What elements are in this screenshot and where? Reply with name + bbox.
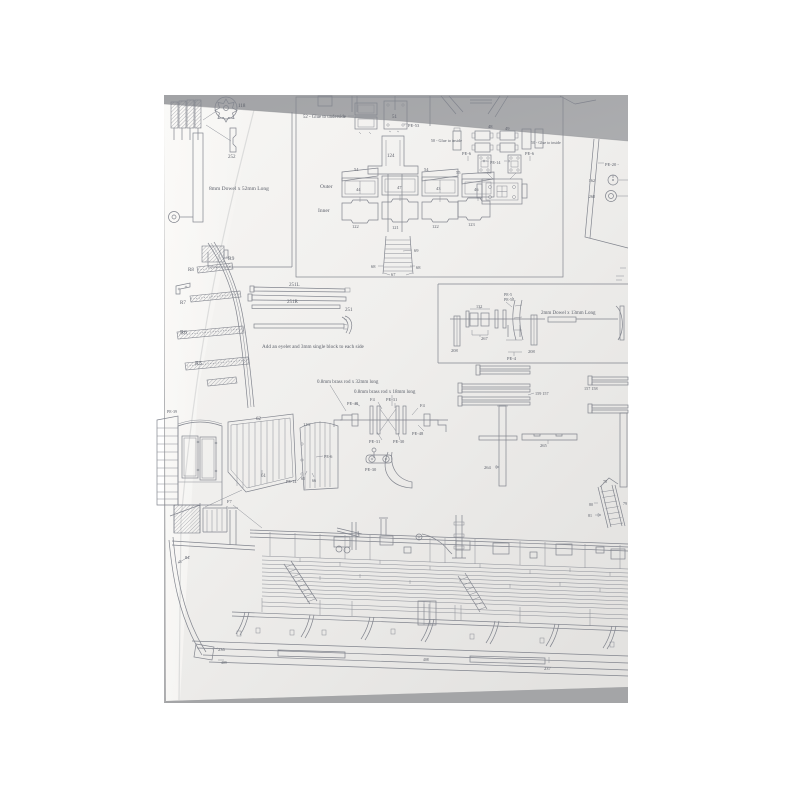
part-label-r5: R5 [195,361,202,367]
part-label-81: 81 [588,513,592,518]
part-label-pe14-top: PE-14 [490,160,501,165]
part-label-pe31-bottom: PE-31 [369,439,380,444]
part-label-162: 162 [589,178,595,183]
part-label-65: 65 [301,476,305,481]
part-label-264: 264 [484,465,492,470]
part-label-267: 267 [481,336,489,341]
part-label-79: 79 [623,501,627,506]
part-label-44: 44 [356,187,361,192]
part-label-122a: 122 [352,224,359,229]
part-label-r8: R8 [188,268,194,273]
part-label-pe30-bottom: PE-30 [365,467,377,472]
part-label-268: 268 [589,194,595,199]
part-label-118: 118 [238,104,246,109]
part-label-116: 116 [303,422,310,427]
part-label-66: 66 [312,478,316,483]
instruction-50-glue-inside-left: 50 - Glue to inside [431,138,462,143]
part-label-54a: 54 [354,167,359,172]
instruction-brassrod-32mm: 0.8mm brass rod x 32mm long [317,380,379,385]
part-label-208-right: 208 [528,349,536,354]
instruction-brassrod-18mm: 0.8mm brass rod x 18mm long [354,390,416,395]
instruction-52-glue-underside: 52 - Glue to underside [303,115,346,120]
part-label-132: 132 [476,304,482,309]
part-label-47: 47 [397,185,402,190]
part-label-265: 265 [540,443,548,448]
part-label-69: 69 [414,248,419,253]
part-label-251R: 251R [287,300,299,305]
part-label-55: 55 [456,170,461,175]
part-label-157-158: 157 158 [584,386,598,391]
part-label-pe50: PE-50 [504,297,514,302]
part-label-pe48-right: PE-48 [412,431,424,436]
part-label-pe6-right: PE-6 [525,151,535,156]
part-label-pe20: PE-20 - [605,162,619,167]
part-label-43: 43 [436,186,441,191]
part-label-pe4: PE-4 [507,356,517,361]
part-label-54b: 54 [424,167,429,172]
part-label-f4-right: F4 [420,403,426,408]
part-label-pe39: PE-39 [167,409,177,414]
part-label-f7: F7 [227,499,233,504]
instruction-dowel-8mm: 8mm Dowel x 52mm Long [209,186,269,192]
part-label-46: 46 [474,187,479,192]
part-label-208-left: 208 [451,348,459,353]
part-label-408: 408 [423,658,429,662]
part-label-pe14-panel: PE-14 [286,479,297,484]
instruction-eyelet-block: Add an eyelet and 3mm single block to ea… [262,344,365,350]
plan-sheet-photo-page: 1182528mm Dowel x 52mm Long52 - Glue to … [0,0,800,800]
part-label-80: 80 [589,502,593,507]
part-label-409: 409 [221,661,227,665]
part-label-pe6-panel: PE-6 [324,454,332,459]
part-label-159-157: 159 157 [535,391,549,396]
part-label-122b: 122 [432,224,439,229]
part-label-61: 61 [261,474,267,479]
part-label-pe53: PE-53 [408,123,420,128]
instruction-dowel-2mm: 2mm Dowel x 13mm Long [541,311,596,316]
part-label-237: 237 [544,666,552,671]
part-label-r9: R9 [228,256,235,262]
part-label-68a: 68 [371,264,376,269]
part-label-pe6-left: PE-6 [462,151,472,156]
part-label-68b: 68 [416,265,421,270]
part-label-r7: R7 [180,301,186,306]
part-label-124: 124 [387,154,395,159]
instruction-50-glue-inside-right: 50 - Glue to inside [531,140,561,145]
part-label-67: 67 [391,272,396,277]
part-label-252: 252 [228,155,236,160]
part-label-49: 49 [505,126,510,131]
caption-inner: Inner [318,208,330,214]
part-label-251L: 251L [289,283,300,288]
part-label-236: 236 [218,647,226,652]
caption-outer: Outer [320,184,333,190]
part-label-251: 251 [345,308,353,313]
part-label-r6: R6 [180,330,187,336]
part-label-51: 51 [392,115,398,120]
part-label-pe31-top: PE-31 [386,397,397,402]
part-label-48: 48 [488,124,493,129]
part-label-f4-left: F4 [370,397,376,402]
part-label-62: 62 [256,417,262,422]
part-label-84: 84 [185,555,190,560]
part-label-pe48-left: PE-48 [347,401,359,406]
part-label-121: 121 [392,225,399,230]
part-label-pe30-mid: PE-30 [393,439,405,444]
part-label-123: 123 [468,222,476,227]
part-label-78: 78 [603,479,607,484]
plan-sheet-photo: 1182528mm Dowel x 52mm Long52 - Glue to … [0,0,800,800]
